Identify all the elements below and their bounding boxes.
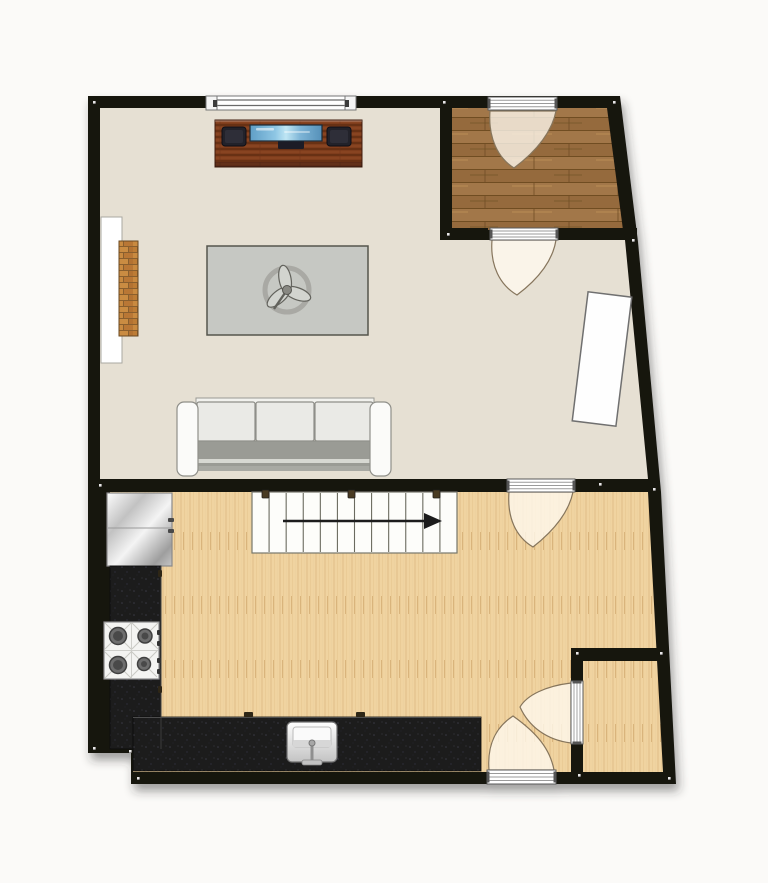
cabinet-handle bbox=[356, 712, 365, 717]
window-frame bbox=[206, 96, 356, 110]
wall-corner-dot bbox=[93, 101, 96, 104]
wall-corner-dot bbox=[578, 774, 581, 777]
wall-corner-dot bbox=[660, 652, 663, 655]
sofa-seat bbox=[197, 441, 373, 470]
speaker-face bbox=[225, 130, 243, 143]
sofa-front-lip bbox=[197, 466, 373, 471]
wall-vestibule-bottom-right bbox=[558, 228, 637, 240]
wall-corner-dot bbox=[599, 483, 602, 486]
wall-closet-left-lower bbox=[571, 744, 583, 772]
wall-corner-dot bbox=[576, 652, 579, 655]
window-cap-mark bbox=[345, 100, 349, 107]
sofa-back-cushion bbox=[315, 402, 373, 441]
window-top-wall bbox=[206, 96, 356, 110]
console-top-highlight bbox=[215, 120, 362, 122]
kitchen-sink bbox=[287, 722, 337, 765]
wall-closet-top bbox=[571, 648, 668, 661]
door-leaf-end bbox=[573, 681, 582, 684]
wall-corner-dot bbox=[99, 484, 102, 487]
door-leaf-end bbox=[490, 230, 493, 239]
door-leaf-end bbox=[573, 742, 582, 745]
door-leaf-end bbox=[555, 99, 558, 109]
wall-corner-dot bbox=[443, 101, 446, 104]
door-leaf-end bbox=[556, 230, 559, 239]
stair-rail-bracket bbox=[348, 490, 355, 498]
stove-knob bbox=[157, 630, 161, 635]
screen-glint bbox=[256, 128, 274, 131]
area-rug bbox=[207, 246, 368, 335]
door-leaf-end bbox=[554, 772, 557, 783]
stair-rail-bracket bbox=[433, 490, 440, 498]
floor-plan-canvas bbox=[0, 0, 768, 883]
door-leaf-end bbox=[488, 99, 491, 109]
wall-living-kitchen-right bbox=[575, 479, 655, 492]
door-leaf-end bbox=[507, 481, 510, 491]
fridge-handle bbox=[168, 529, 174, 533]
screen-glint bbox=[284, 131, 310, 133]
door-leaf-end bbox=[573, 481, 576, 491]
tv-console bbox=[215, 120, 362, 167]
stove-knob bbox=[157, 641, 161, 646]
wall-closet-left-upper bbox=[571, 661, 583, 682]
brick-chimney bbox=[119, 241, 138, 336]
door-leaf-end bbox=[487, 772, 490, 783]
wall-corner-dot bbox=[93, 747, 96, 750]
burner-center bbox=[113, 660, 123, 670]
sofa-armrest bbox=[370, 402, 391, 476]
sofa-front-highlight bbox=[197, 459, 373, 463]
fridge-handle bbox=[168, 518, 174, 522]
sofa bbox=[177, 398, 391, 476]
wall-corner-dot bbox=[447, 233, 450, 236]
wall-corner-dot bbox=[632, 239, 635, 242]
wall-corner-dot bbox=[137, 777, 140, 780]
stove-knob bbox=[157, 669, 161, 674]
faucet-base bbox=[309, 740, 315, 746]
burner-center bbox=[141, 661, 147, 667]
burner-center bbox=[142, 633, 149, 640]
cabinet-handle bbox=[158, 686, 162, 693]
fridge-body bbox=[107, 493, 172, 566]
wall-corner-dot bbox=[129, 750, 132, 753]
sofa-back-cushion bbox=[197, 402, 255, 441]
cabinet-handle bbox=[158, 570, 162, 577]
console-bottom-shade bbox=[215, 162, 362, 167]
stove-cooktop bbox=[104, 622, 161, 679]
sofa-back-cushion bbox=[256, 402, 314, 441]
fan-hub bbox=[283, 286, 292, 295]
wall-vestibule-left bbox=[440, 96, 452, 240]
faucet-handle bbox=[302, 760, 322, 765]
refrigerator bbox=[107, 493, 174, 566]
stove-knob bbox=[157, 658, 161, 663]
sofa-armrest bbox=[177, 402, 198, 476]
cabinet-handle bbox=[244, 712, 253, 717]
speaker-face bbox=[330, 130, 348, 143]
wall-corner-dot bbox=[653, 488, 656, 491]
wall-corner-dot bbox=[613, 101, 616, 104]
wall-corner-dot bbox=[668, 777, 671, 780]
floor-plan-page bbox=[0, 0, 768, 883]
window-cap-mark bbox=[213, 100, 217, 107]
wall-living-kitchen-left bbox=[94, 479, 507, 492]
stair-rail-bracket bbox=[262, 490, 269, 498]
burner-center bbox=[113, 631, 123, 641]
staircase bbox=[252, 490, 457, 553]
